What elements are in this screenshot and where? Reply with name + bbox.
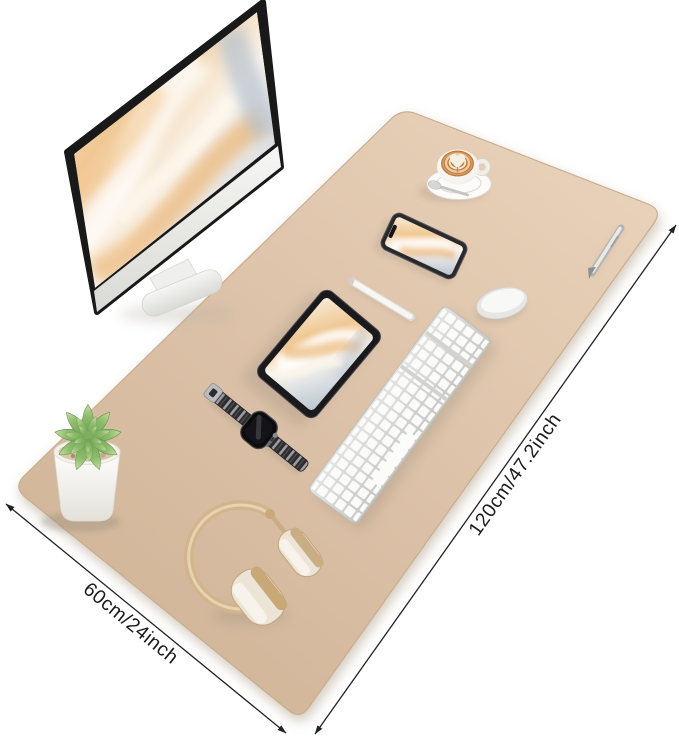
scene-canvas: 120cm/47.2inch 60cm/24inch [0,0,679,740]
product-photo: 120cm/47.2inch 60cm/24inch [0,0,679,740]
